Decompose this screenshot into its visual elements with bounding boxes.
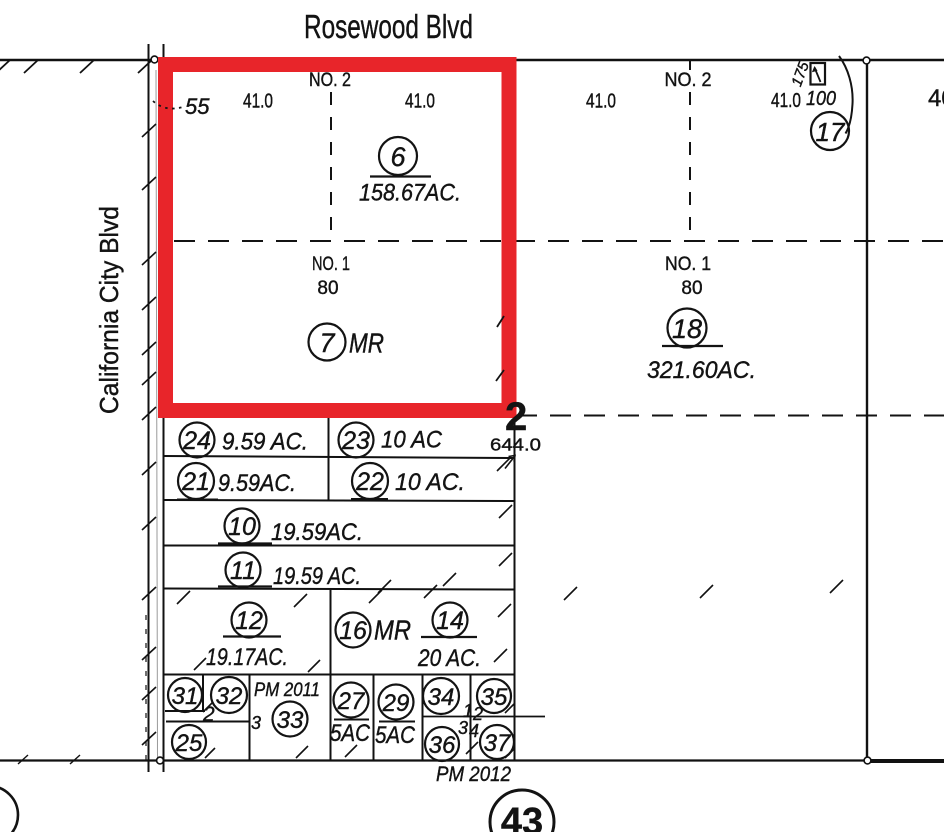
svg-text:19.59AC.: 19.59AC.	[271, 519, 363, 546]
svg-text:175: 175	[788, 59, 813, 89]
svg-text:NO. 1: NO. 1	[665, 254, 711, 275]
svg-text:17: 17	[816, 117, 846, 147]
svg-text:NO. 1: NO. 1	[312, 254, 350, 275]
svg-text:NO. 2: NO. 2	[309, 70, 351, 91]
svg-text:644.0: 644.0	[490, 435, 541, 455]
svg-text:18: 18	[672, 314, 702, 344]
svg-text:19.17AC.: 19.17AC.	[206, 644, 288, 671]
svg-text:PM 2011: PM 2011	[254, 679, 320, 701]
svg-text:33: 33	[277, 707, 304, 734]
svg-text:80: 80	[681, 278, 702, 299]
svg-text:3: 3	[458, 718, 468, 738]
svg-text:5AC: 5AC	[375, 722, 416, 749]
svg-text:10: 10	[228, 513, 256, 541]
svg-text:California City Blvd: California City Blvd	[94, 206, 124, 414]
svg-text:34: 34	[428, 684, 455, 711]
svg-text:PM 2012: PM 2012	[436, 763, 511, 786]
svg-text:10 AC: 10 AC	[381, 427, 443, 454]
svg-text:36: 36	[429, 732, 456, 759]
svg-text:37: 37	[484, 730, 512, 757]
svg-text:21: 21	[181, 468, 210, 496]
svg-text:25: 25	[175, 730, 203, 757]
svg-text:20 AC.: 20 AC.	[417, 645, 481, 672]
svg-text:11: 11	[230, 557, 256, 585]
svg-text:NO. 2: NO. 2	[665, 70, 712, 91]
svg-text:43: 43	[501, 801, 543, 832]
svg-text:19.59 AC.: 19.59 AC.	[273, 563, 361, 590]
svg-text:32: 32	[216, 683, 243, 710]
svg-text:100: 100	[806, 88, 836, 110]
svg-text:55: 55	[185, 94, 210, 119]
svg-text:41.0: 41.0	[586, 91, 616, 113]
svg-text:158.67AC.: 158.67AC.	[359, 180, 461, 207]
svg-text:22: 22	[355, 468, 384, 496]
svg-text:9.59AC.: 9.59AC.	[218, 470, 296, 497]
svg-text:41.0: 41.0	[243, 91, 273, 113]
svg-text:10 AC.: 10 AC.	[395, 469, 465, 496]
svg-text:2: 2	[505, 395, 527, 439]
svg-text:31: 31	[172, 683, 199, 710]
svg-text:MR: MR	[374, 615, 411, 646]
svg-text:24: 24	[182, 427, 211, 455]
svg-text:6: 6	[390, 142, 406, 172]
svg-text:27: 27	[337, 688, 366, 715]
svg-text:7: 7	[319, 328, 335, 358]
svg-text:80: 80	[317, 278, 338, 299]
svg-text:14: 14	[436, 607, 464, 635]
svg-text:9.59 AC.: 9.59 AC.	[222, 429, 308, 456]
svg-text:MR: MR	[349, 328, 384, 359]
svg-text:16: 16	[339, 617, 367, 645]
svg-text:12: 12	[235, 607, 263, 635]
svg-text:2: 2	[202, 703, 215, 726]
svg-text:Rosewood Blvd: Rosewood Blvd	[304, 9, 473, 46]
svg-text:40: 40	[928, 85, 944, 112]
svg-text:35: 35	[481, 684, 508, 711]
svg-text:41.0: 41.0	[771, 90, 801, 112]
svg-text:3: 3	[251, 713, 261, 733]
svg-text:321.60AC.: 321.60AC.	[647, 357, 756, 384]
svg-text:5AC: 5AC	[330, 720, 371, 747]
svg-text:41.0: 41.0	[405, 91, 435, 113]
svg-text:4: 4	[469, 721, 479, 741]
svg-text:29: 29	[382, 690, 410, 717]
svg-text:23: 23	[341, 427, 370, 455]
